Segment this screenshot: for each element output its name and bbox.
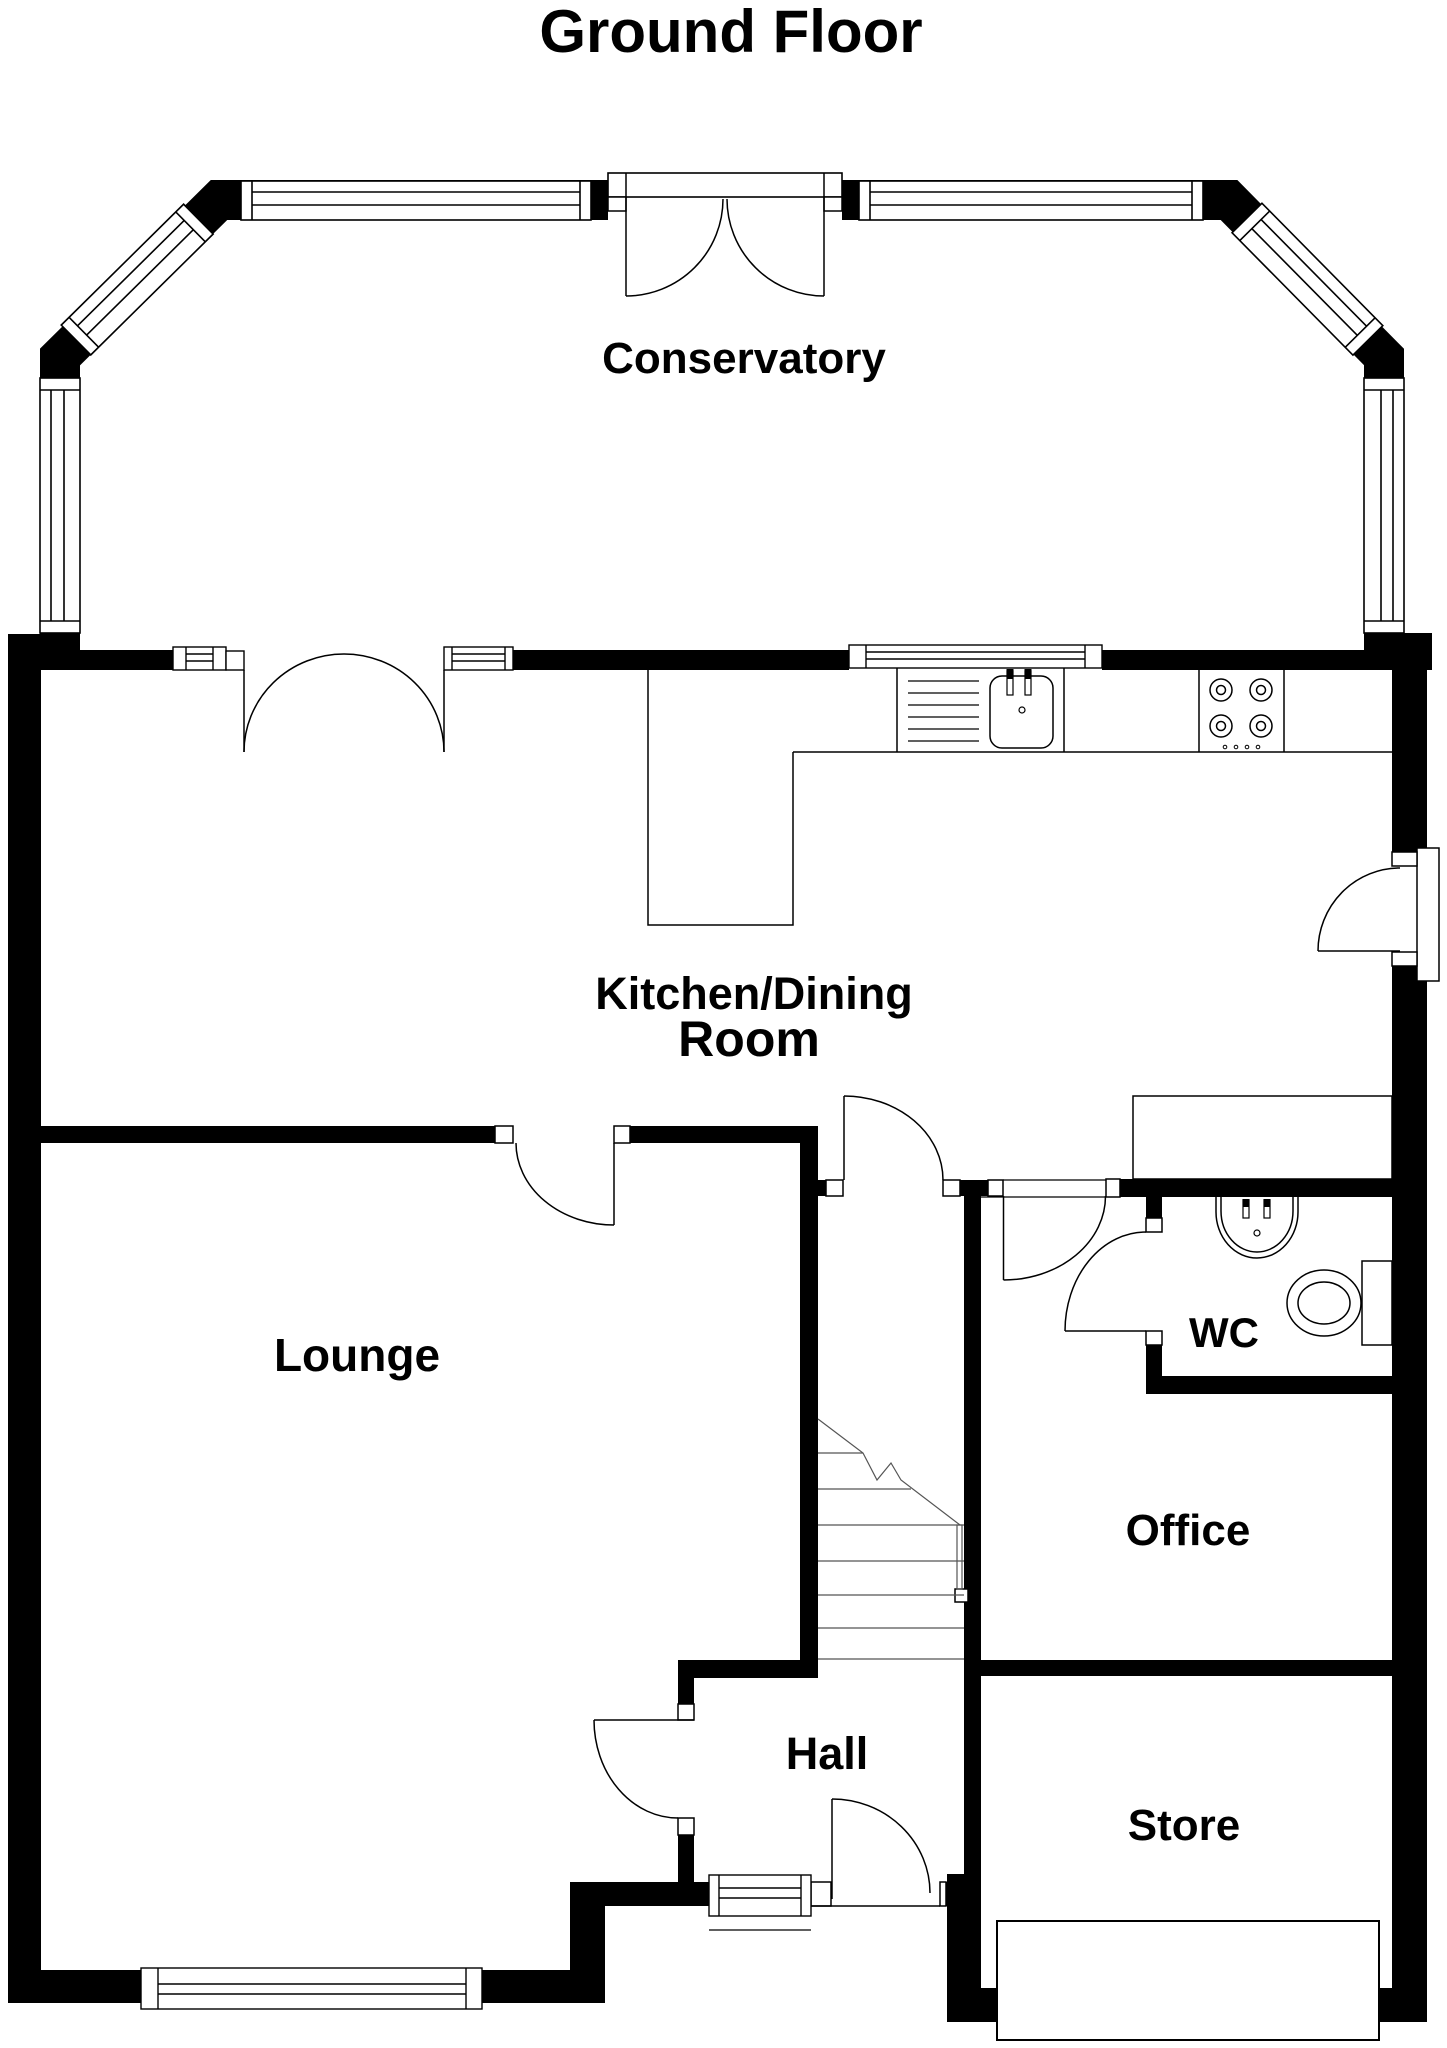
svg-text:Ground Floor: Ground Floor	[539, 0, 922, 65]
svg-text:Office: Office	[1126, 1506, 1251, 1555]
svg-text:Lounge: Lounge	[274, 1329, 440, 1381]
svg-text:Room: Room	[678, 1011, 820, 1067]
svg-text:Conservatory: Conservatory	[602, 334, 886, 383]
svg-text:Store: Store	[1128, 1801, 1240, 1850]
svg-text:Hall: Hall	[786, 1728, 869, 1779]
svg-text:WC: WC	[1189, 1309, 1259, 1356]
